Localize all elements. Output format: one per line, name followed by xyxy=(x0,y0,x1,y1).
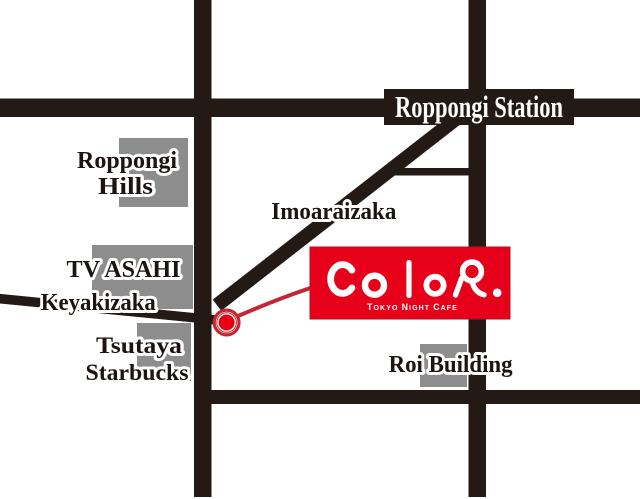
svg-text:Hills: Hills xyxy=(98,174,153,200)
svg-text:TV ASAHI: TV ASAHI xyxy=(67,257,181,283)
svg-text:Roppongi: Roppongi xyxy=(77,148,177,174)
svg-text:Imoaraizaka: Imoaraizaka xyxy=(271,199,396,225)
svg-text:Tsutaya: Tsutaya xyxy=(96,333,182,359)
svg-text:Roi Building: Roi Building xyxy=(389,352,513,378)
svg-text:Keyakizaka: Keyakizaka xyxy=(41,290,156,316)
svg-text:Roppongi Station: Roppongi Station xyxy=(395,89,563,124)
svg-text:Starbucks: Starbucks xyxy=(86,360,189,386)
